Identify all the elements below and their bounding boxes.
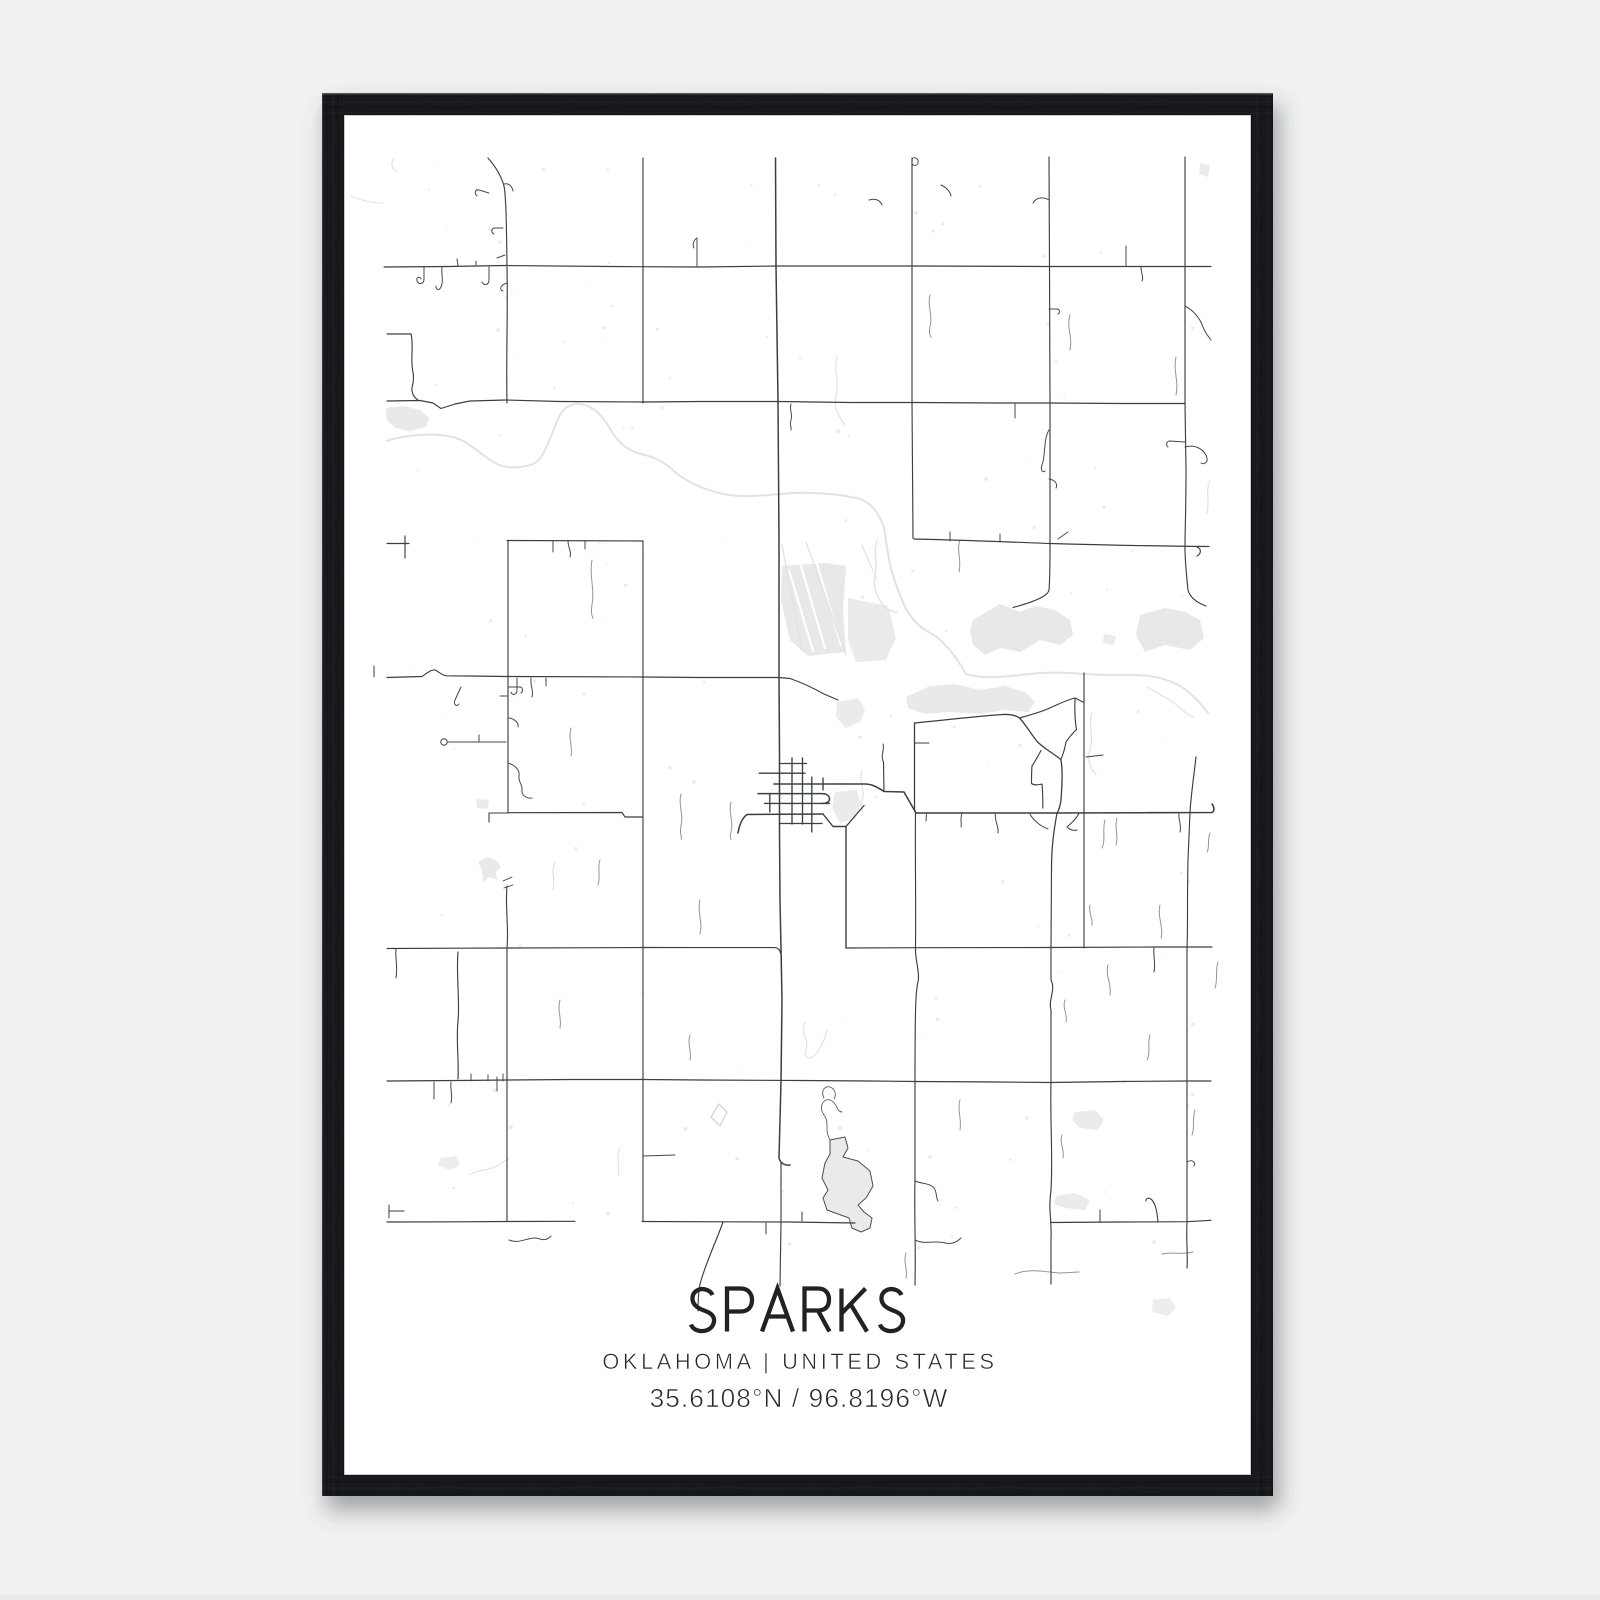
svg-text:OKLAHOMA | UNITED STATES: OKLAHOMA | UNITED STATES xyxy=(602,1349,997,1374)
svg-text:35.6108°N / 96.8196°W: 35.6108°N / 96.8196°W xyxy=(650,1383,949,1413)
